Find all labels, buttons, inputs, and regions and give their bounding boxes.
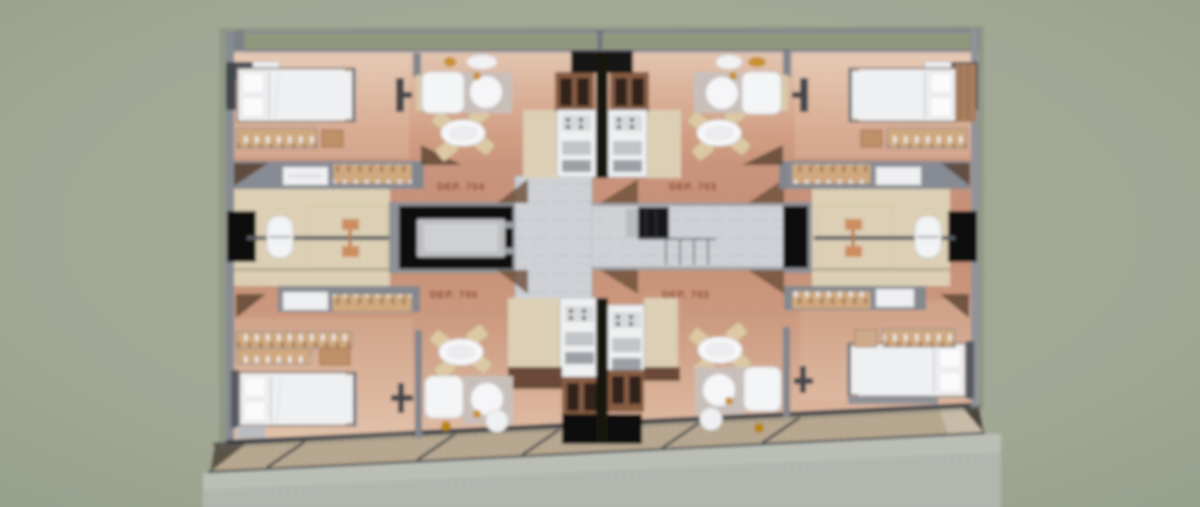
svg-text:DEP. 700: DEP. 700 [430, 290, 478, 301]
svg-text:DEP. 704: DEP. 704 [437, 182, 485, 193]
svg-text:DEP. 703: DEP. 703 [669, 182, 717, 193]
svg-text:DEP. 702: DEP. 702 [662, 290, 710, 301]
